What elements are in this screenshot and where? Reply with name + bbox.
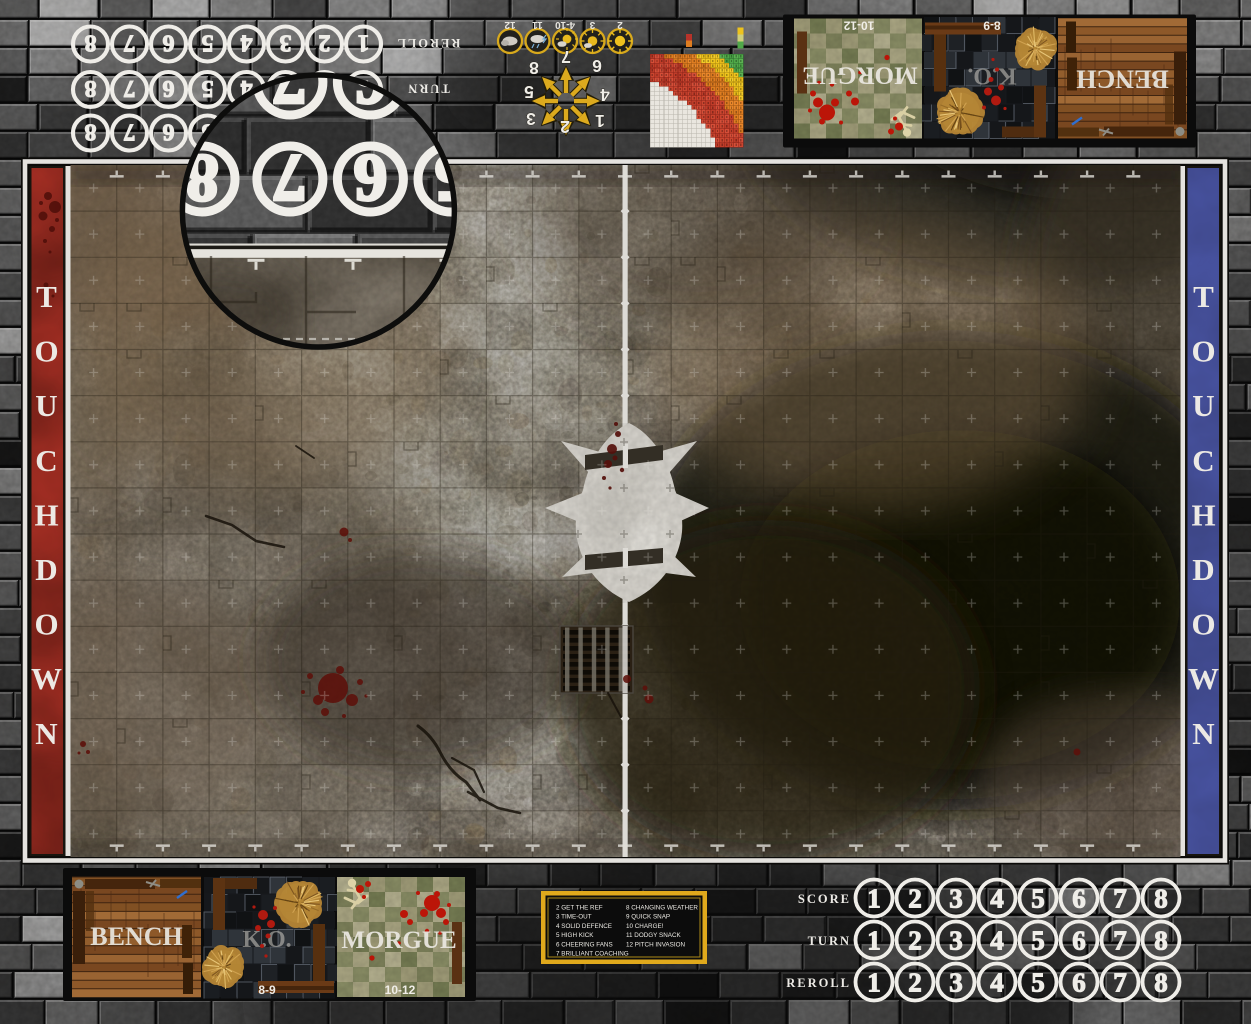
svg-text:11: 11 xyxy=(532,19,543,30)
svg-text:O: O xyxy=(34,607,58,642)
svg-text:MORGUE: MORGUE xyxy=(341,927,456,954)
svg-text:4: 4 xyxy=(990,967,1004,997)
svg-text:4: 4 xyxy=(990,925,1004,955)
svg-text:4-10: 4-10 xyxy=(555,19,575,30)
svg-text:7: 7 xyxy=(561,47,571,67)
svg-text:2: 2 xyxy=(560,117,570,137)
svg-text:10 CHARGE!: 10 CHARGE! xyxy=(626,923,664,930)
svg-text:8: 8 xyxy=(1154,883,1168,913)
svg-text:TURN: TURN xyxy=(808,934,851,948)
svg-text:5: 5 xyxy=(1031,967,1045,997)
svg-text:U: U xyxy=(35,388,57,423)
svg-text:O: O xyxy=(34,334,58,369)
svg-text:6: 6 xyxy=(1072,967,1086,997)
svg-text:D: D xyxy=(35,552,57,587)
svg-text:7 BRILLIANT COACHING: 7 BRILLIANT COACHING xyxy=(556,951,629,958)
svg-text:6: 6 xyxy=(163,119,175,145)
svg-text:2: 2 xyxy=(319,30,331,56)
svg-text:2 GET THE REF: 2 GET THE REF xyxy=(556,905,603,912)
svg-text:H: H xyxy=(34,497,58,532)
svg-text:5: 5 xyxy=(202,30,214,56)
svg-text:C: C xyxy=(35,443,57,478)
svg-text:T: T xyxy=(1193,279,1214,314)
svg-text:2: 2 xyxy=(617,19,623,30)
svg-text:8: 8 xyxy=(1154,925,1168,955)
svg-text:1: 1 xyxy=(867,967,881,997)
svg-text:N: N xyxy=(1192,716,1214,751)
svg-text:1: 1 xyxy=(867,883,881,913)
svg-text:4: 4 xyxy=(241,30,253,56)
svg-text:6: 6 xyxy=(1072,925,1086,955)
svg-text:U: U xyxy=(1192,388,1214,423)
svg-text:D: D xyxy=(1192,552,1214,587)
svg-text:W: W xyxy=(1188,661,1219,696)
svg-text:4 SOLID DEFENCE: 4 SOLID DEFENCE xyxy=(556,923,612,930)
svg-text:10-12: 10-12 xyxy=(385,983,416,997)
svg-text:5 HIGH KICK: 5 HIGH KICK xyxy=(556,932,594,939)
svg-text:8: 8 xyxy=(529,58,539,78)
svg-text:O: O xyxy=(1191,607,1215,642)
svg-text:C: C xyxy=(1192,443,1214,478)
svg-text:7: 7 xyxy=(124,75,136,101)
svg-text:3: 3 xyxy=(949,967,963,997)
svg-text:7: 7 xyxy=(1113,925,1127,955)
svg-text:8 CHANGING WEATHER: 8 CHANGING WEATHER xyxy=(626,905,698,912)
svg-text:11 DODGY SNACK: 11 DODGY SNACK xyxy=(626,932,682,939)
svg-text:H: H xyxy=(1191,497,1215,532)
svg-text:5: 5 xyxy=(1031,883,1045,913)
svg-text:3: 3 xyxy=(280,30,292,56)
svg-text:6: 6 xyxy=(353,141,387,217)
svg-text:6: 6 xyxy=(592,56,602,76)
svg-text:8: 8 xyxy=(85,30,97,56)
svg-text:8: 8 xyxy=(85,75,97,101)
svg-text:BENCH: BENCH xyxy=(90,922,182,951)
svg-text:9 QUICK SNAP: 9 QUICK SNAP xyxy=(626,914,670,921)
svg-text:2: 2 xyxy=(908,883,922,913)
svg-text:REROLL: REROLL xyxy=(786,976,851,990)
svg-text:6: 6 xyxy=(1072,883,1086,913)
svg-text:4: 4 xyxy=(600,85,610,105)
svg-text:8-9: 8-9 xyxy=(258,983,276,997)
svg-text:5: 5 xyxy=(1031,925,1045,955)
svg-text:12 PITCH INVASION: 12 PITCH INVASION xyxy=(626,941,685,948)
svg-text:1: 1 xyxy=(595,111,605,131)
svg-text:2: 2 xyxy=(908,967,922,997)
svg-text:3: 3 xyxy=(526,109,536,129)
svg-text:1: 1 xyxy=(358,30,370,56)
svg-text:8: 8 xyxy=(1154,967,1168,997)
svg-text:3: 3 xyxy=(949,883,963,913)
svg-text:3 TIME-OUT: 3 TIME-OUT xyxy=(556,914,592,921)
svg-text:1: 1 xyxy=(867,925,881,955)
svg-text:TURN: TURN xyxy=(406,82,449,96)
svg-text:5: 5 xyxy=(202,75,214,101)
svg-text:O: O xyxy=(1191,334,1215,369)
svg-text:K.O.: K.O. xyxy=(242,927,291,953)
svg-text:7: 7 xyxy=(124,30,136,56)
svg-text:12: 12 xyxy=(504,19,516,30)
svg-text:T: T xyxy=(36,279,57,314)
svg-text:2: 2 xyxy=(908,925,922,955)
svg-text:N: N xyxy=(35,716,57,751)
svg-text:REROLL: REROLL xyxy=(396,36,461,50)
svg-text:W: W xyxy=(31,661,62,696)
svg-text:6: 6 xyxy=(163,30,175,56)
svg-text:6 CHEERING FANS: 6 CHEERING FANS xyxy=(556,941,613,948)
svg-text:7: 7 xyxy=(273,141,307,217)
svg-text:4: 4 xyxy=(990,883,1004,913)
svg-text:6: 6 xyxy=(163,75,175,101)
svg-text:5: 5 xyxy=(524,82,534,102)
svg-text:7: 7 xyxy=(1113,967,1127,997)
svg-text:7: 7 xyxy=(124,119,136,145)
svg-text:SCORE: SCORE xyxy=(798,892,851,906)
svg-text:3: 3 xyxy=(589,19,595,30)
svg-text:8: 8 xyxy=(85,119,97,145)
svg-text:3: 3 xyxy=(949,925,963,955)
svg-text:7: 7 xyxy=(1113,883,1127,913)
